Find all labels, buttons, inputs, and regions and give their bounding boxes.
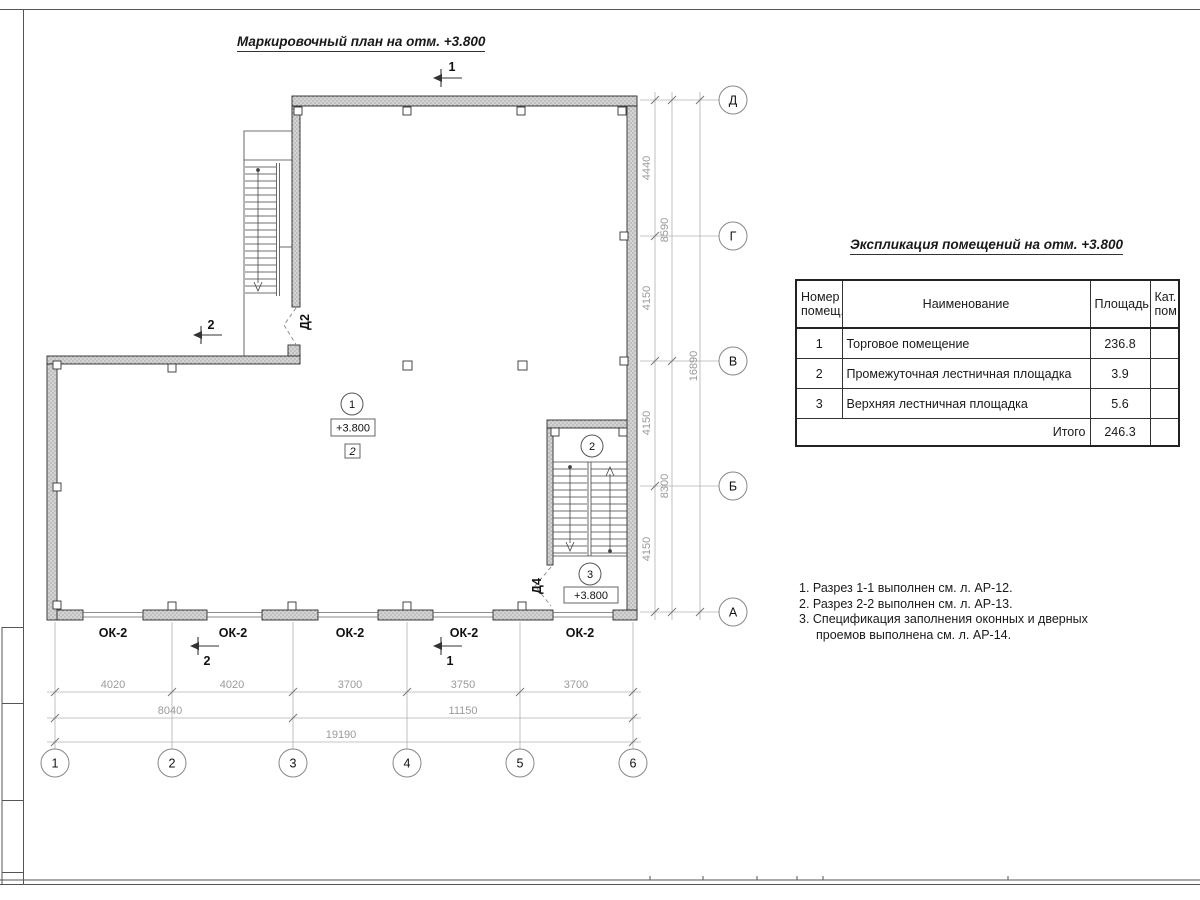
sheet-frame	[0, 10, 1200, 885]
dim-3700-a: 3700	[338, 679, 362, 691]
header-room-number-line2: помещ.	[801, 304, 838, 318]
elevation-value-stair: +3.800	[574, 590, 608, 602]
table-row: 3 Верхняя лестничная площадка 5.6	[796, 389, 1179, 419]
dim-4150-c: 4150	[641, 537, 653, 561]
elevation-value-room1: +3.800	[336, 423, 370, 435]
notes-block: 1. Разрез 1-1 выполнен см. л. АР-12. 2. …	[799, 581, 1088, 643]
axis-letter-g: Г	[730, 230, 737, 244]
axis-letter-v: В	[729, 355, 737, 369]
dim-11150: 11150	[449, 705, 478, 717]
dim-3700-b: 3700	[564, 679, 588, 691]
dimensions-right: 4440 4150 4150 4150 8590 8300 16890	[641, 156, 700, 561]
window-label-1: ОК-2	[99, 626, 128, 640]
table-title-text: Экспликация помещений на отм. +3.800	[850, 237, 1123, 255]
row2-name: Промежуточная лестничная площадка	[842, 359, 1090, 389]
door-label-d4: Д4	[530, 578, 544, 594]
axis-circles-numbers	[41, 749, 647, 777]
table-title: Экспликация помещений на отм. +3.800	[795, 237, 1178, 252]
total-label: Итого	[796, 419, 1090, 447]
stair-main	[553, 462, 627, 556]
header-category-line1: Кат.	[1155, 290, 1175, 304]
row2-area: 3.9	[1090, 359, 1150, 389]
table-row: 2 Промежуточная лестничная площадка 3.9	[796, 359, 1179, 389]
header-area: Площадь	[1090, 280, 1150, 328]
note-1: 1. Разрез 1-1 выполнен см. л. АР-12.	[799, 581, 1088, 597]
note-3-line1: 3. Спецификация заполнения оконных и две…	[799, 612, 1088, 628]
row3-area: 5.6	[1090, 389, 1150, 419]
plan-title: Маркировочный план на отм. +3.800	[237, 34, 485, 52]
section-mark-bottom-right-label: 1	[447, 654, 454, 668]
door-label-d2: Д2	[298, 314, 312, 330]
dim-19190: 19190	[326, 729, 357, 741]
window-label-5: ОК-2	[566, 626, 595, 640]
dim-4440: 4440	[641, 156, 653, 180]
window-label-3: ОК-2	[336, 626, 365, 640]
header-room-number-line1: Номер	[801, 290, 838, 304]
dimensions-bottom: 4020 4020 3700 3750 3700 8040 11150 1919…	[101, 679, 588, 741]
walls	[47, 96, 637, 620]
dim-8040: 8040	[158, 705, 182, 717]
row1-area: 236.8	[1090, 328, 1150, 359]
row3-category	[1150, 389, 1179, 419]
dim-16890: 16890	[688, 351, 700, 382]
room-number-3: 3	[587, 569, 593, 581]
dim-4020-a: 4020	[101, 679, 125, 691]
header-room-number: Номер помещ.	[796, 280, 842, 328]
axis-number-5: 5	[517, 757, 524, 771]
row2-category	[1150, 359, 1179, 389]
axis-number-2: 2	[169, 757, 176, 771]
axis-number-3: 3	[290, 757, 297, 771]
dim-4150-b: 4150	[641, 411, 653, 435]
room-number-2: 2	[589, 441, 595, 453]
total-value: 246.3	[1090, 419, 1150, 447]
row2-number: 2	[796, 359, 842, 389]
explication-block: Экспликация помещений на отм. +3.800 Ном…	[795, 237, 1178, 447]
row1-category	[1150, 328, 1179, 359]
dim-8300: 8300	[659, 474, 671, 498]
row1-number: 1	[796, 328, 842, 359]
axis-letter-b: Б	[729, 480, 737, 494]
row3-name: Верхняя лестничная площадка	[842, 389, 1090, 419]
header-category: Кат. пом.	[1150, 280, 1179, 328]
row3-number: 3	[796, 389, 842, 419]
note-2: 2. Разрез 2-2 выполнен см. л. АР-13.	[799, 597, 1088, 613]
dim-4020-b: 4020	[220, 679, 244, 691]
stair-annex	[244, 131, 292, 356]
dim-8590: 8590	[659, 218, 671, 242]
header-name: Наименование	[842, 280, 1090, 328]
dim-4150-a: 4150	[641, 286, 653, 310]
section-mark-top-label: 1	[449, 60, 456, 74]
axis-letter-a: А	[729, 606, 738, 620]
axis-number-1: 1	[52, 757, 59, 771]
section-mark-bottom-left-label: 2	[204, 654, 211, 668]
window-label-2: ОК-2	[219, 626, 248, 640]
door-swings	[284, 308, 551, 606]
floor-type-marker: 2	[348, 446, 355, 458]
room-number-1: 1	[349, 399, 355, 411]
axis-number-4: 4	[404, 757, 411, 771]
section-mark-left-label: 2	[208, 318, 215, 332]
dim-3750: 3750	[451, 679, 475, 691]
explication-table: Номер помещ. Наименование Площадь Кат. п…	[795, 279, 1180, 447]
total-category	[1150, 419, 1179, 447]
axis-letter-d: Д	[729, 94, 738, 108]
table-row: 1 Торговое помещение 236.8	[796, 328, 1179, 359]
row1-name: Торговое помещение	[842, 328, 1090, 359]
table-header-row: Номер помещ. Наименование Площадь Кат. п…	[796, 280, 1179, 328]
note-3-line2: проемов выполнена см. л. АР-14.	[799, 628, 1088, 644]
window-label-4: ОК-2	[450, 626, 479, 640]
axis-number-6: 6	[630, 757, 637, 771]
floor-plan-drawing: Д2 Д4 1 2 3 +3.800 +3.800 2 ОК-2 ОК-2 ОК…	[0, 0, 1200, 900]
table-total-row: Итого 246.3	[796, 419, 1179, 447]
header-category-line2: пом.	[1155, 304, 1175, 318]
